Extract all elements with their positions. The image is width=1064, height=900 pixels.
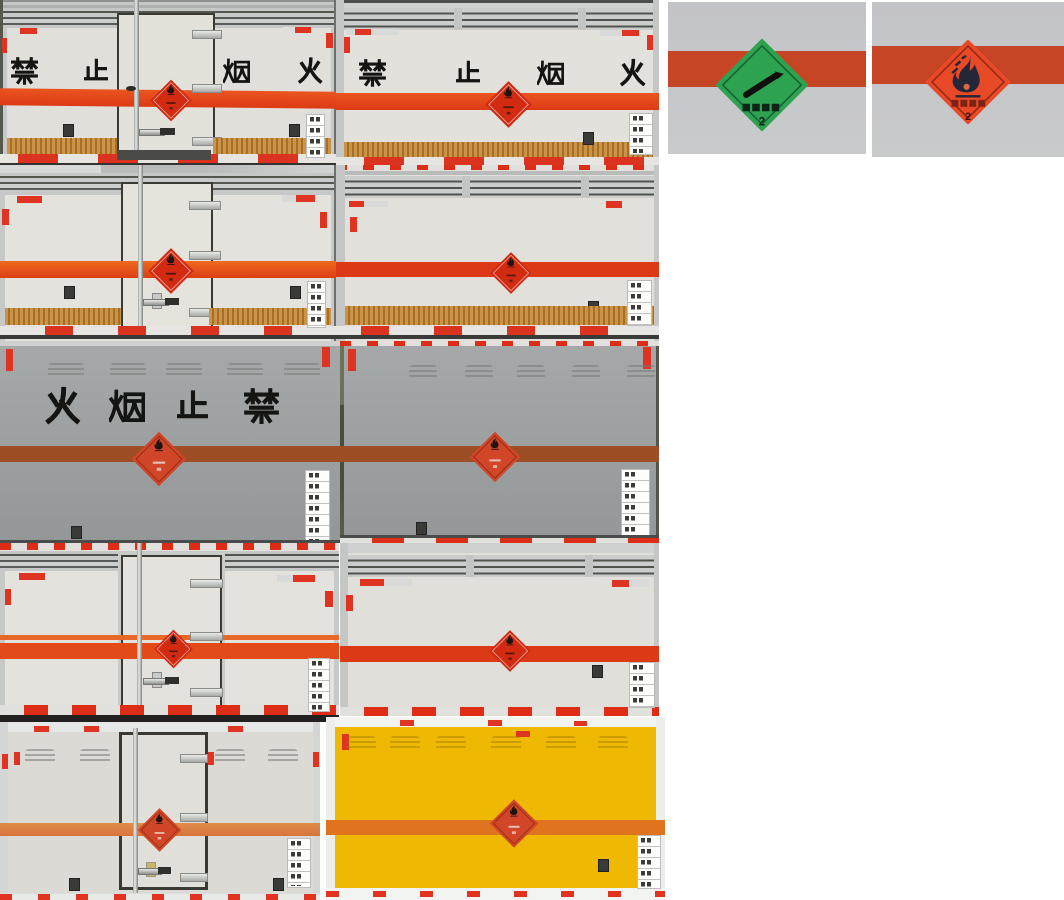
svg-text:2: 2	[965, 111, 971, 123]
svg-text:2: 2	[759, 115, 766, 129]
